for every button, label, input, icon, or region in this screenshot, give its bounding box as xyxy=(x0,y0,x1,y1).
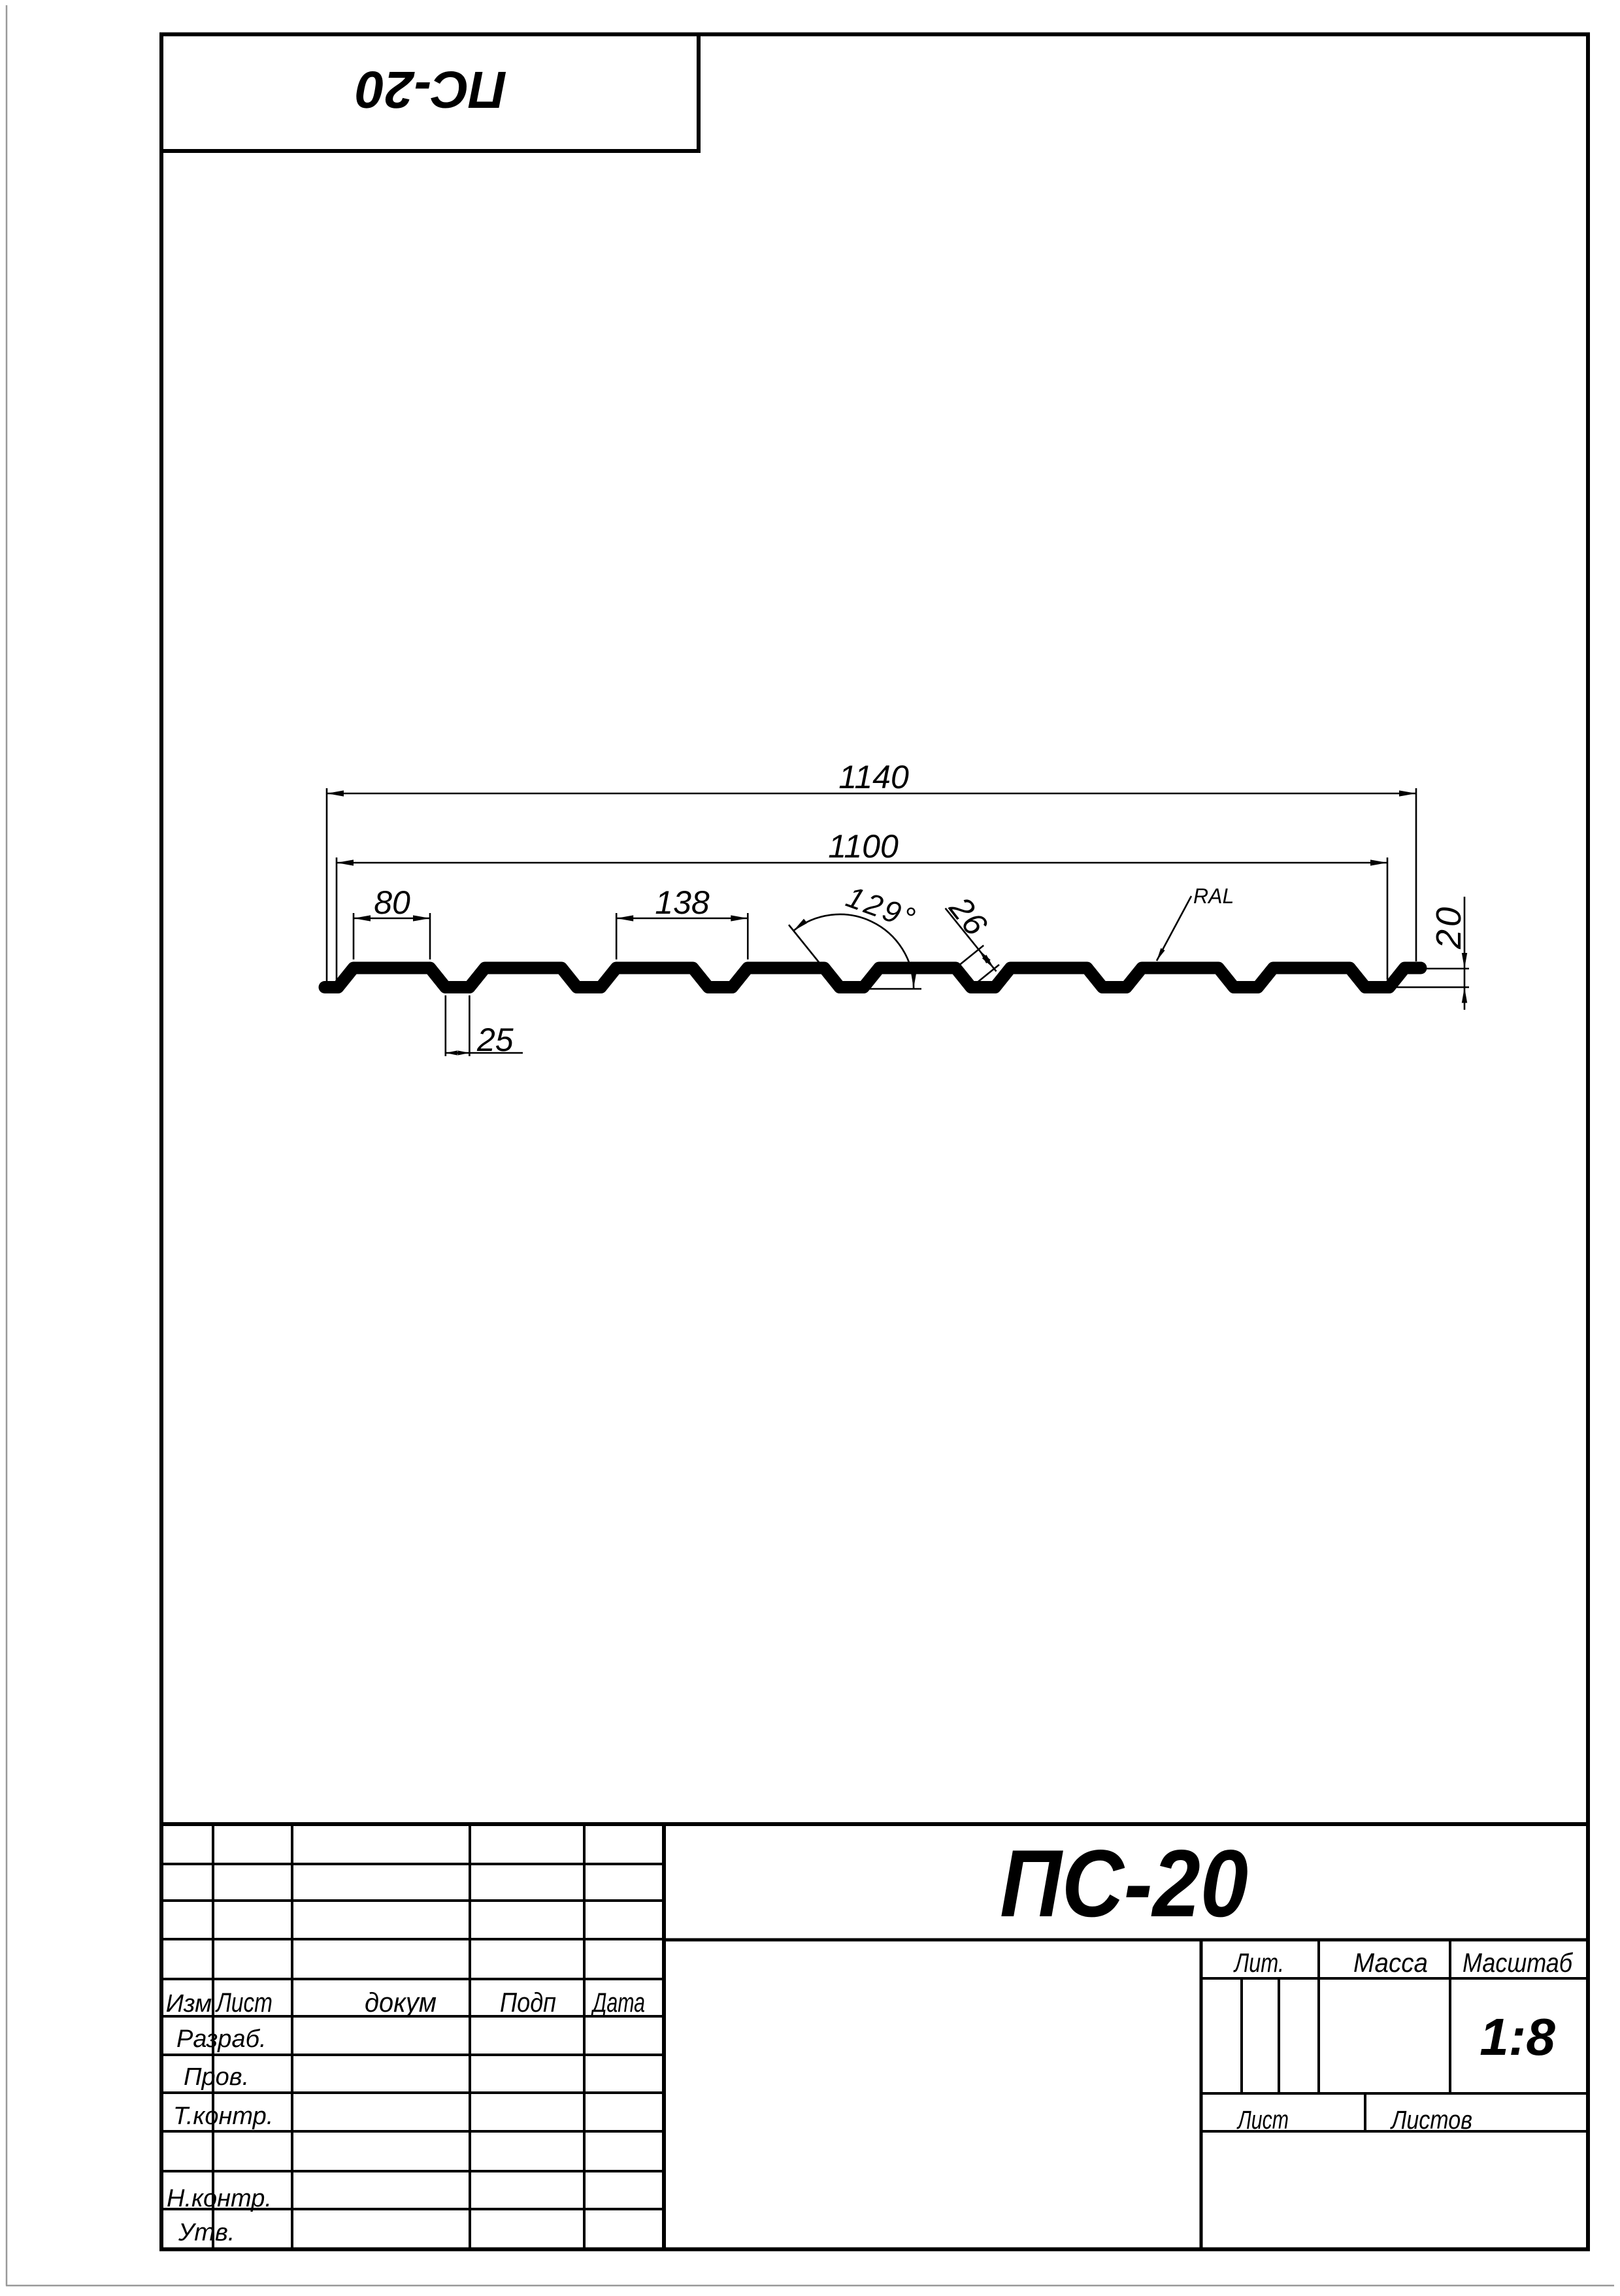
svg-text:1:8: 1:8 xyxy=(1479,2008,1555,2066)
svg-text:Изм: Изм xyxy=(166,1990,212,2018)
svg-text:80: 80 xyxy=(374,884,410,921)
svg-text:1140: 1140 xyxy=(838,759,909,795)
svg-text:ПС-20: ПС-20 xyxy=(356,61,507,119)
svg-text:Масштаб: Масштаб xyxy=(1463,1948,1574,1978)
svg-text:Лист: Лист xyxy=(215,1987,273,2018)
svg-text:Листов: Листов xyxy=(1389,2106,1472,2135)
svg-text:Подп: Подп xyxy=(500,1987,556,2018)
svg-text:Масса: Масса xyxy=(1353,1948,1428,1978)
svg-text:ПС-20: ПС-20 xyxy=(1000,1830,1248,1937)
svg-text:Лист: Лист xyxy=(1236,2106,1289,2135)
svg-text:докум: докум xyxy=(365,1987,437,2018)
svg-text:RAL: RAL xyxy=(1193,884,1234,908)
svg-text:Дата: Дата xyxy=(591,1987,645,2018)
svg-text:25: 25 xyxy=(476,1022,514,1058)
svg-text:Утв.: Утв. xyxy=(178,2219,235,2246)
svg-text:Н.контр.: Н.контр. xyxy=(167,2185,272,2212)
svg-text:Пров.: Пров. xyxy=(184,2063,249,2091)
svg-text:Лит.: Лит. xyxy=(1233,1948,1284,1978)
svg-text:1100: 1100 xyxy=(828,828,899,865)
svg-text:20: 20 xyxy=(1429,905,1468,950)
svg-text:Т.контр.: Т.контр. xyxy=(173,2103,273,2130)
svg-text:Разраб.: Разраб. xyxy=(176,2025,267,2053)
svg-text:138: 138 xyxy=(655,884,710,921)
